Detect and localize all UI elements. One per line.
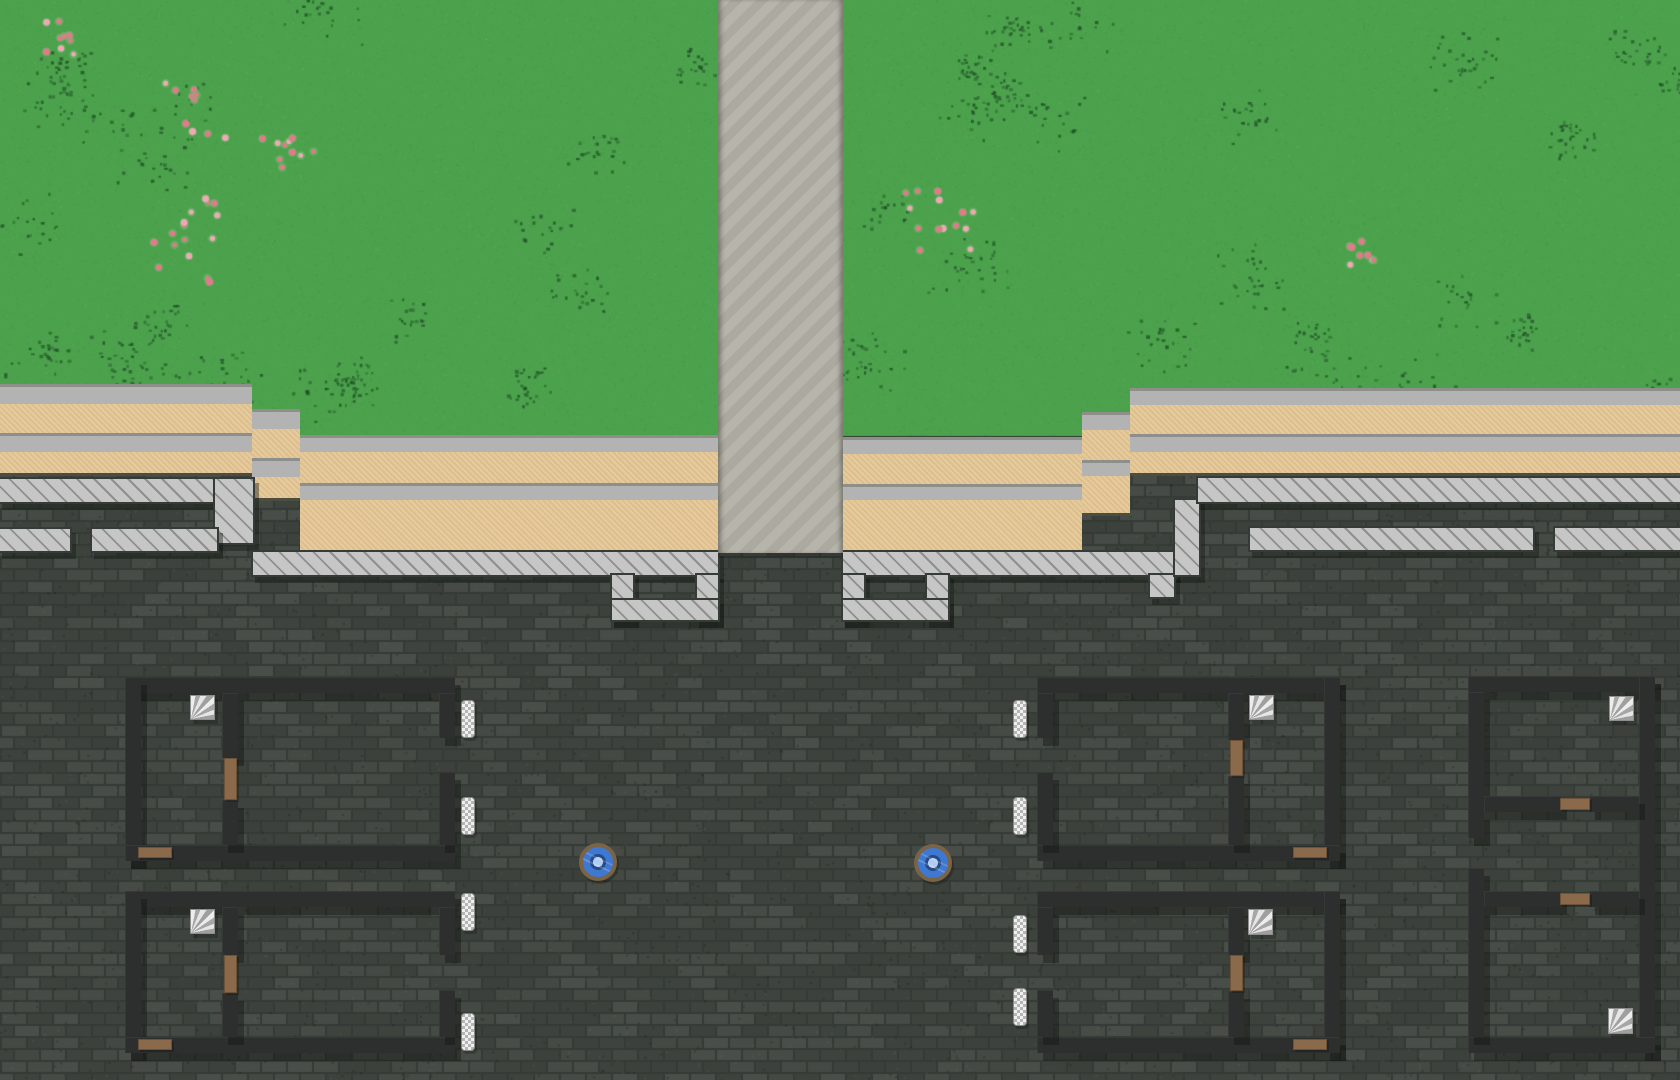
game-map-viewport xyxy=(0,0,1680,1080)
well[interactable] xyxy=(914,844,952,882)
well[interactable] xyxy=(579,843,617,881)
prop-layer xyxy=(0,0,1680,1080)
